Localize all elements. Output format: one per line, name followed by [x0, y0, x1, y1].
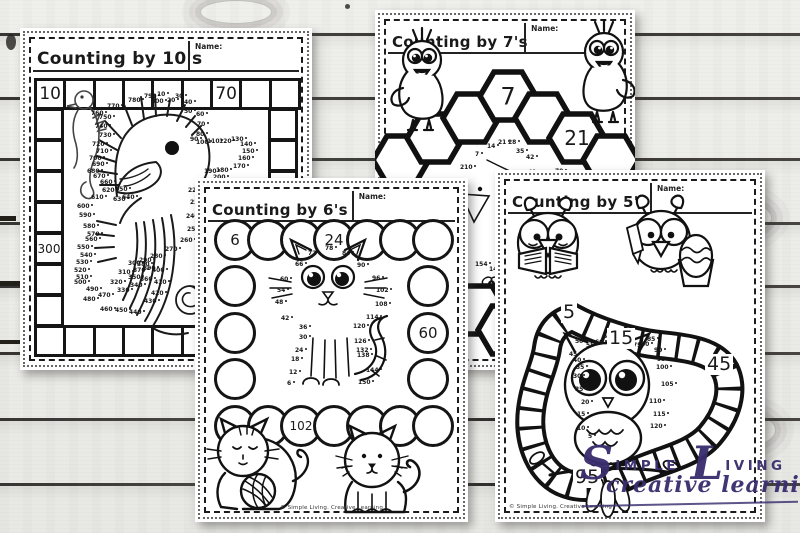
- dot-number: 450: [115, 308, 131, 314]
- dot-number: 36: [299, 325, 311, 331]
- dot-number: 30: [573, 374, 585, 380]
- dot-number: 42: [526, 155, 538, 161]
- dot-number: 28: [508, 140, 520, 146]
- dot-number: 340: [130, 283, 146, 289]
- dot-number: 610: [91, 195, 107, 201]
- dot-number: 320: [110, 280, 126, 286]
- watermark-line2: creative learning: [606, 472, 800, 498]
- dot-number: 600: [77, 204, 93, 210]
- dot-number: 40: [184, 100, 196, 106]
- dot-number: 42: [281, 316, 293, 322]
- dot-number: 96: [372, 276, 384, 282]
- dot-number: 102: [376, 288, 392, 294]
- dot-number: 720: [92, 142, 108, 148]
- dot-number: 540: [80, 253, 96, 259]
- dot-number: 700: [89, 156, 105, 162]
- dot-number: 270: [165, 247, 181, 253]
- copyright-text: © Simple Living. Creative Learning: [195, 505, 468, 511]
- path-cell-number: 15: [607, 328, 635, 349]
- dot-number: 30: [299, 335, 311, 341]
- dot-number: 84: [342, 251, 354, 257]
- dot-number: 95: [657, 357, 669, 363]
- dot-number: 150: [358, 380, 374, 386]
- dot-number: 590: [79, 213, 95, 219]
- dot-number: 530: [76, 260, 92, 266]
- dot-number: 90: [654, 348, 666, 354]
- dot-number: 24: [295, 348, 307, 354]
- dot-number: 78: [325, 246, 337, 252]
- dot-number: 740: [95, 124, 111, 130]
- dot-number: 680: [87, 169, 103, 175]
- dot-number: 570: [87, 232, 103, 238]
- dot-number: 72: [308, 251, 320, 257]
- wood-grain-swirl: [200, 0, 272, 24]
- dot-number: 48: [275, 300, 287, 306]
- dot-number: 115: [653, 412, 669, 418]
- dot-number: 18: [291, 357, 303, 363]
- dot-number: 114: [366, 315, 382, 321]
- wood-speck: [345, 4, 350, 9]
- dot-number: 490: [86, 287, 102, 293]
- dot-number: 108: [375, 302, 391, 308]
- dot-number: 20: [581, 400, 593, 406]
- dot-number: 640: [122, 195, 138, 201]
- dot-number: 420: [151, 291, 167, 297]
- dot-number: 550: [77, 245, 93, 251]
- dot-number: 35: [576, 365, 588, 371]
- dot-number: 90: [357, 263, 369, 269]
- dot-number: 15: [577, 412, 589, 418]
- wood-mark: [0, 216, 16, 221]
- dot-number: 10: [577, 426, 589, 432]
- path-cell-number: 45: [705, 354, 733, 375]
- worksheet-counting-by-6s: Counting by 6's Name: 61022460: [195, 178, 468, 522]
- dot-number: 12: [289, 370, 301, 376]
- dot-number: 60: [595, 340, 607, 346]
- dot-number: 480: [83, 297, 99, 303]
- dot-number: 120: [650, 424, 666, 430]
- dot-number: 800: [151, 99, 167, 105]
- dot-number: 126: [354, 339, 370, 345]
- dot-number: 470: [98, 293, 114, 299]
- dot-number: 170: [233, 164, 249, 170]
- path-cell-number: 5: [561, 302, 577, 323]
- dot-number: 70: [197, 122, 209, 128]
- dot-number: 60: [280, 277, 292, 283]
- dot-number: 650: [115, 187, 131, 193]
- dot-number: 710: [96, 149, 112, 155]
- watermark: SIMPLELIVING creative learning: [580, 440, 800, 498]
- worksheet-collage: Counting by 7's Name: 721: [0, 0, 800, 533]
- dot-number: 510: [76, 275, 92, 281]
- dot-number: 580: [83, 224, 99, 230]
- dot-number: 25: [575, 387, 587, 393]
- dot-to-dot-numbers: 7278846690609654102481084211436120301262…: [195, 178, 468, 522]
- dot-number: 520: [74, 268, 90, 274]
- dot-number: 260: [180, 238, 196, 244]
- dot-number: 60: [196, 112, 208, 118]
- dot-number: 6: [287, 381, 295, 387]
- dot-number: 50: [184, 109, 196, 115]
- dot-number: 105: [661, 382, 677, 388]
- dot-number: 210: [460, 165, 476, 171]
- dot-number: 66: [295, 262, 307, 268]
- dot-number: 430: [144, 299, 160, 305]
- dot-number: 160: [238, 156, 254, 162]
- dot-number: 460: [100, 307, 116, 313]
- dot-number: 400: [152, 268, 168, 274]
- dot-number: 770: [107, 104, 123, 110]
- dot-number: 440: [129, 310, 145, 316]
- dot-number: 144: [366, 368, 382, 374]
- dot-number: 410: [154, 280, 170, 286]
- dot-number: 780: [128, 98, 144, 104]
- dot-number: 85: [647, 337, 659, 343]
- dot-number: 760: [91, 111, 107, 117]
- dot-number: 110: [649, 399, 665, 405]
- dot-number: 120: [353, 324, 369, 330]
- dot-number: 100: [656, 365, 672, 371]
- dot-number: 660: [100, 180, 116, 186]
- dot-number: 690: [92, 162, 108, 168]
- dot-number: 54: [277, 288, 289, 294]
- dot-number: 138: [357, 353, 373, 359]
- dot-number: 730: [99, 133, 115, 139]
- dot-number: 7: [475, 152, 483, 158]
